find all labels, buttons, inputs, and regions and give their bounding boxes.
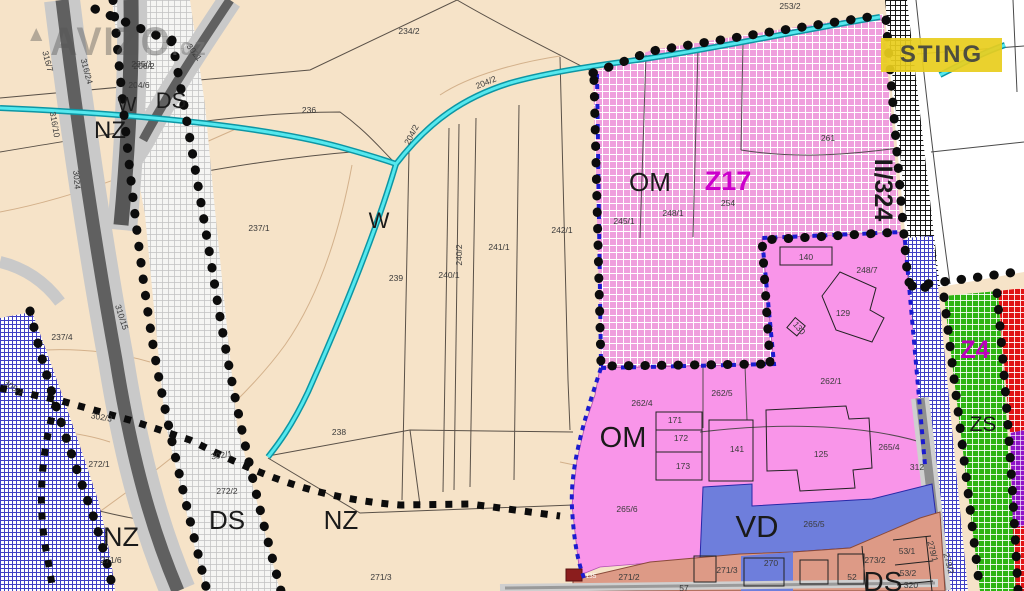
parcel-label: 248/7 (856, 265, 878, 275)
parcel-label: 240/1 (438, 270, 460, 280)
parcel-label: 236 (302, 105, 316, 115)
parcel-label: 125 (814, 449, 828, 459)
parcel-label: 261 (821, 133, 835, 143)
parcel-label: 245/1 (613, 216, 635, 226)
zone-label: OM (600, 422, 647, 454)
zone-label: NZ (94, 117, 126, 144)
parcel-label: 262/1 (820, 376, 842, 386)
zone-label: DS (864, 566, 903, 591)
parcel-label: 238 (332, 427, 346, 437)
parcel-label: 273/2 (864, 555, 886, 565)
zone-label: W (369, 208, 390, 233)
parcel-label: 272/1 (88, 459, 110, 469)
parcel-label: 171 (668, 415, 682, 425)
zone-label: Z4 (960, 336, 989, 364)
zoning-map-viewport: 234/2235/1236206/2204/6253/2237/1239240/… (0, 0, 1024, 591)
parcel-label: 141 (730, 444, 744, 454)
sting-watermark-badge: STING (881, 38, 1002, 72)
parcel-label: 173 (676, 461, 690, 471)
building-dark-red (566, 569, 582, 581)
parcel-label: 53/1 (899, 546, 916, 556)
parcel-label: 52 (847, 572, 857, 582)
zone-label: OM (629, 167, 671, 197)
parcel-label: 265/6 (616, 504, 638, 514)
zone-label: ZS (970, 413, 997, 436)
parcel-label: 271/3 (716, 565, 738, 575)
parcel-label: 248/1 (662, 208, 684, 218)
parcel-label: 272/2 (216, 486, 238, 496)
zone-label: II/324 (869, 159, 897, 222)
zone-label: VD (735, 509, 778, 544)
parcel-label: 3024 (71, 170, 83, 190)
parcel-label: 262/5 (711, 388, 733, 398)
parcel-label: 265/4 (878, 442, 900, 452)
zone-label: DS (209, 505, 245, 535)
parcel-label: 271/3 (370, 572, 392, 582)
parcel-label: 237/4 (51, 332, 73, 342)
parcel-label: 206/2 (133, 61, 155, 71)
parcel-label: 312 (910, 462, 924, 472)
parcel-label: 240/2 (454, 244, 464, 266)
parcel-label: 172 (674, 433, 688, 443)
zone-label: NZ (324, 505, 359, 535)
parcel-label: 270 (764, 558, 778, 568)
parcel-label: 271/2 (618, 572, 640, 582)
parcel-label: 234/2 (398, 26, 420, 36)
parcel-label: 135 (586, 573, 597, 580)
zoning-map: 234/2235/1236206/2204/6253/2237/1239240/… (0, 0, 1024, 591)
parcel-label: 271/6 (100, 555, 122, 565)
parcel-label: 239 (389, 273, 403, 283)
parcel-label: 262/4 (631, 398, 653, 408)
zone-label: DS (156, 88, 187, 113)
zone-label: Z17 (705, 166, 752, 196)
parcel-label: 265/5 (803, 519, 825, 529)
parcel-label: 320 (904, 580, 918, 590)
zone-label: W (118, 94, 137, 116)
parcel-label: 241/1 (488, 242, 510, 252)
parcel-label: 140 (799, 252, 813, 262)
parcel-label: 242/1 (551, 225, 573, 235)
parcel-label: 237/1 (248, 223, 270, 233)
parcel-label: 57 (679, 583, 689, 591)
parcel-label: 129 (836, 308, 850, 318)
parcel-label: 204/6 (128, 80, 150, 90)
parcel-label: 254 (721, 198, 735, 208)
parcel-label: 253/2 (779, 1, 801, 11)
zone-label: NZ (103, 522, 139, 552)
